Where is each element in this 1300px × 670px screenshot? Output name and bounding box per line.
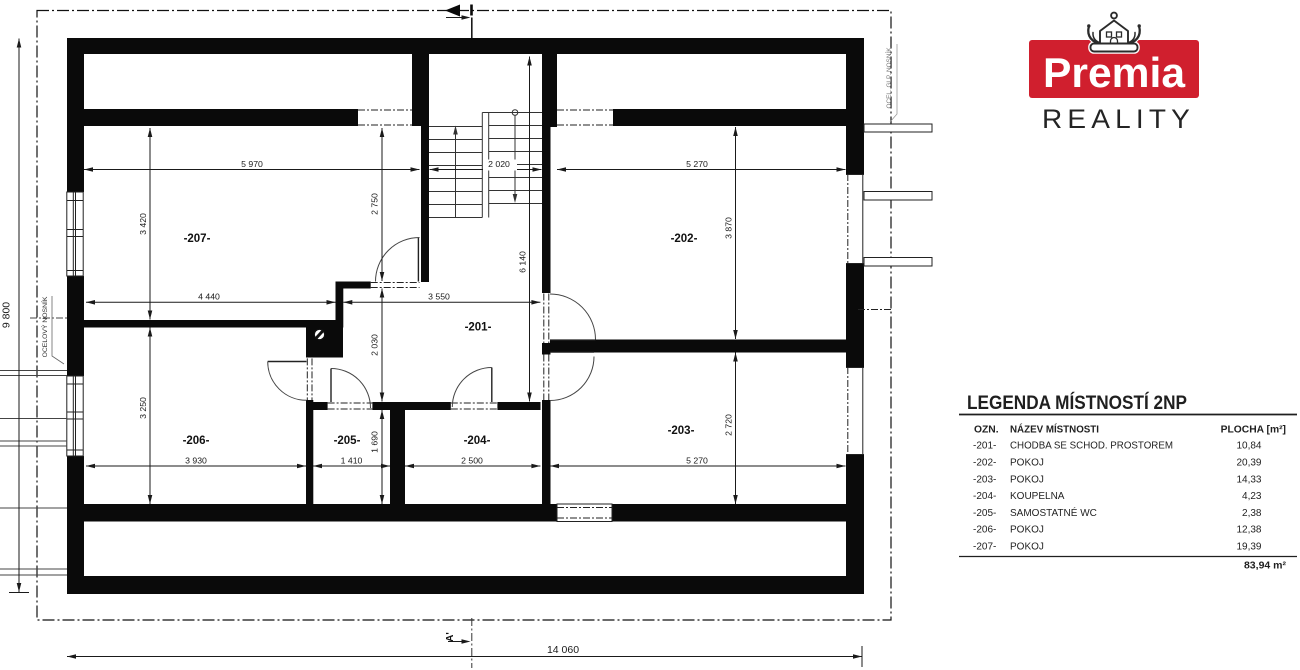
svg-text:14 060: 14 060: [547, 644, 579, 656]
svg-text:-201-: -201-: [973, 441, 996, 452]
svg-text:3 930: 3 930: [185, 456, 207, 466]
svg-text:5 270: 5 270: [686, 159, 708, 169]
svg-text:OCELOVÝ NOSNÍK: OCELOVÝ NOSNÍK: [40, 296, 49, 357]
svg-text:-204-: -204-: [973, 491, 996, 502]
svg-text:3 550: 3 550: [428, 292, 450, 302]
svg-text:3 250: 3 250: [138, 397, 148, 419]
svg-text:2,38: 2,38: [1242, 508, 1262, 519]
svg-text:6 140: 6 140: [517, 251, 527, 273]
svg-text:2 500: 2 500: [461, 456, 483, 466]
svg-text:POKOJ: POKOJ: [1010, 525, 1044, 536]
svg-text:POKOJ: POKOJ: [1010, 474, 1044, 485]
svg-text:PLOCHA [m²]: PLOCHA [m²]: [1221, 425, 1286, 436]
svg-text:5 270: 5 270: [686, 456, 708, 466]
svg-text:2 750: 2 750: [370, 193, 380, 215]
svg-text:SAMOSTATNÉ WC: SAMOSTATNÉ WC: [1010, 506, 1097, 519]
svg-text:NÁZEV MÍSTNOSTI: NÁZEV MÍSTNOSTI: [1010, 423, 1099, 436]
svg-text:LEGENDA MÍSTNOSTÍ 2NP: LEGENDA MÍSTNOSTÍ 2NP: [967, 391, 1187, 414]
svg-text:-202-: -202-: [671, 233, 698, 245]
svg-text:14,33: 14,33: [1236, 474, 1261, 485]
svg-text:19,39: 19,39: [1236, 542, 1261, 553]
svg-text:1 410: 1 410: [341, 456, 363, 466]
svg-text:3 870: 3 870: [723, 217, 733, 239]
svg-text:Premia: Premia: [1043, 49, 1186, 96]
svg-text:2 020: 2 020: [488, 159, 510, 169]
svg-text:-205-: -205-: [973, 508, 996, 519]
svg-text:10,84: 10,84: [1236, 441, 1261, 452]
svg-text:5 970: 5 970: [241, 159, 263, 169]
svg-text:4 440: 4 440: [198, 292, 220, 302]
svg-text:-204-: -204-: [464, 435, 491, 447]
svg-text:CHODBA SE SCHOD. PROSTOREM: CHODBA SE SCHOD. PROSTOREM: [1010, 441, 1173, 452]
svg-text:12,38: 12,38: [1236, 525, 1261, 536]
svg-text:OZN.: OZN.: [974, 425, 999, 436]
svg-text:-202-: -202-: [973, 458, 996, 469]
svg-text:83,94 m²: 83,94 m²: [1244, 560, 1287, 572]
svg-text:2 030: 2 030: [370, 334, 380, 356]
svg-text:-207-: -207-: [184, 233, 211, 245]
svg-text:POKOJ: POKOJ: [1010, 542, 1044, 553]
svg-text:-206-: -206-: [183, 435, 210, 447]
svg-text:OCEL. GLP. NOSNÍK: OCEL. GLP. NOSNÍK: [884, 47, 893, 109]
svg-text:-206-: -206-: [973, 525, 996, 536]
svg-text:3 420: 3 420: [138, 213, 148, 235]
svg-text:-205-: -205-: [334, 435, 361, 447]
svg-text:4,23: 4,23: [1242, 491, 1262, 502]
svg-text:2 720: 2 720: [723, 414, 733, 436]
svg-text:-207-: -207-: [973, 542, 996, 553]
svg-text:A': A': [445, 632, 456, 642]
svg-text:-201-: -201-: [465, 322, 492, 334]
svg-text:1 690: 1 690: [370, 431, 380, 453]
svg-text:-203-: -203-: [668, 425, 695, 437]
svg-text:9 800: 9 800: [1, 302, 13, 328]
svg-text:20,39: 20,39: [1236, 458, 1261, 469]
svg-text:KOUPELNA: KOUPELNA: [1010, 491, 1065, 502]
svg-text:POKOJ: POKOJ: [1010, 458, 1044, 469]
svg-text:-203-: -203-: [973, 474, 996, 485]
svg-text:REALITY: REALITY: [1042, 104, 1195, 134]
